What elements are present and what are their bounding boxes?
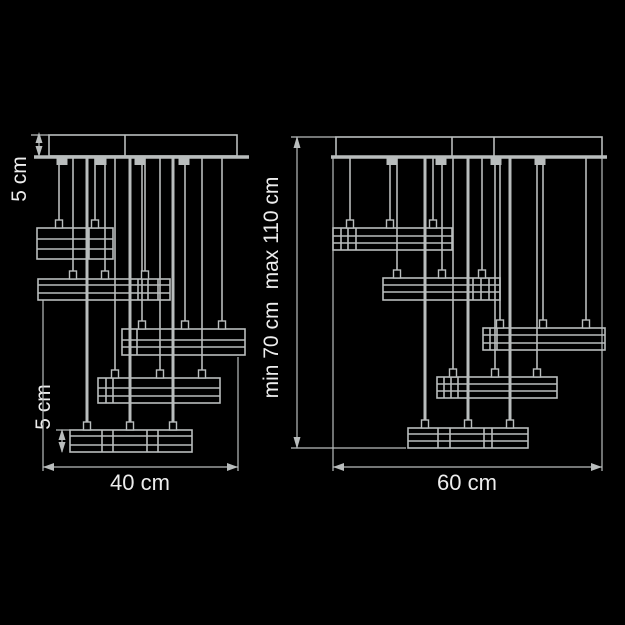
right-suspension-wires <box>350 158 586 428</box>
right-lamp-bar-4 <box>437 377 557 398</box>
left-lamp-bar-5 <box>70 430 192 452</box>
right-canopy-mount-blocks <box>387 158 546 165</box>
pendant-lamp-dimension-drawing: 5 cm 5 cm 40 cm <box>0 0 625 625</box>
right-diagram: max 110 cm min 70 cm 60 cm <box>260 136 607 495</box>
left-diagram: 5 cm 5 cm 40 cm <box>8 132 249 495</box>
right-lamp-bar-1 <box>333 228 452 250</box>
right-max-height-label: max 110 cm <box>260 177 283 290</box>
left-lamp-bar-4 <box>98 378 220 403</box>
right-lamp-bar-2 <box>383 278 500 300</box>
left-canopy-mount-blocks <box>57 158 190 165</box>
dimension-drawing-canvas: 5 cm 5 cm 40 cm <box>0 0 625 625</box>
right-min-height-label: min 70 cm <box>260 302 283 399</box>
left-canopy-height-dimension: 5 cm <box>8 132 49 202</box>
right-width-label: 60 cm <box>437 470 497 495</box>
right-canopy <box>331 137 607 157</box>
left-width-label: 40 cm <box>110 470 170 495</box>
left-lamp-bar-1 <box>37 228 113 259</box>
left-lamp-bar-2 <box>38 279 170 300</box>
left-wire-connectors <box>56 220 226 430</box>
right-lamp-bar-3 <box>483 328 605 350</box>
left-canopy-height-label: 5 cm <box>8 156 31 202</box>
left-canopy <box>34 135 249 157</box>
right-lamp-bar-5 <box>408 428 528 448</box>
left-lamp-bar-height-dimension: 5 cm <box>32 384 70 453</box>
left-lamp-bar-3 <box>122 329 245 355</box>
